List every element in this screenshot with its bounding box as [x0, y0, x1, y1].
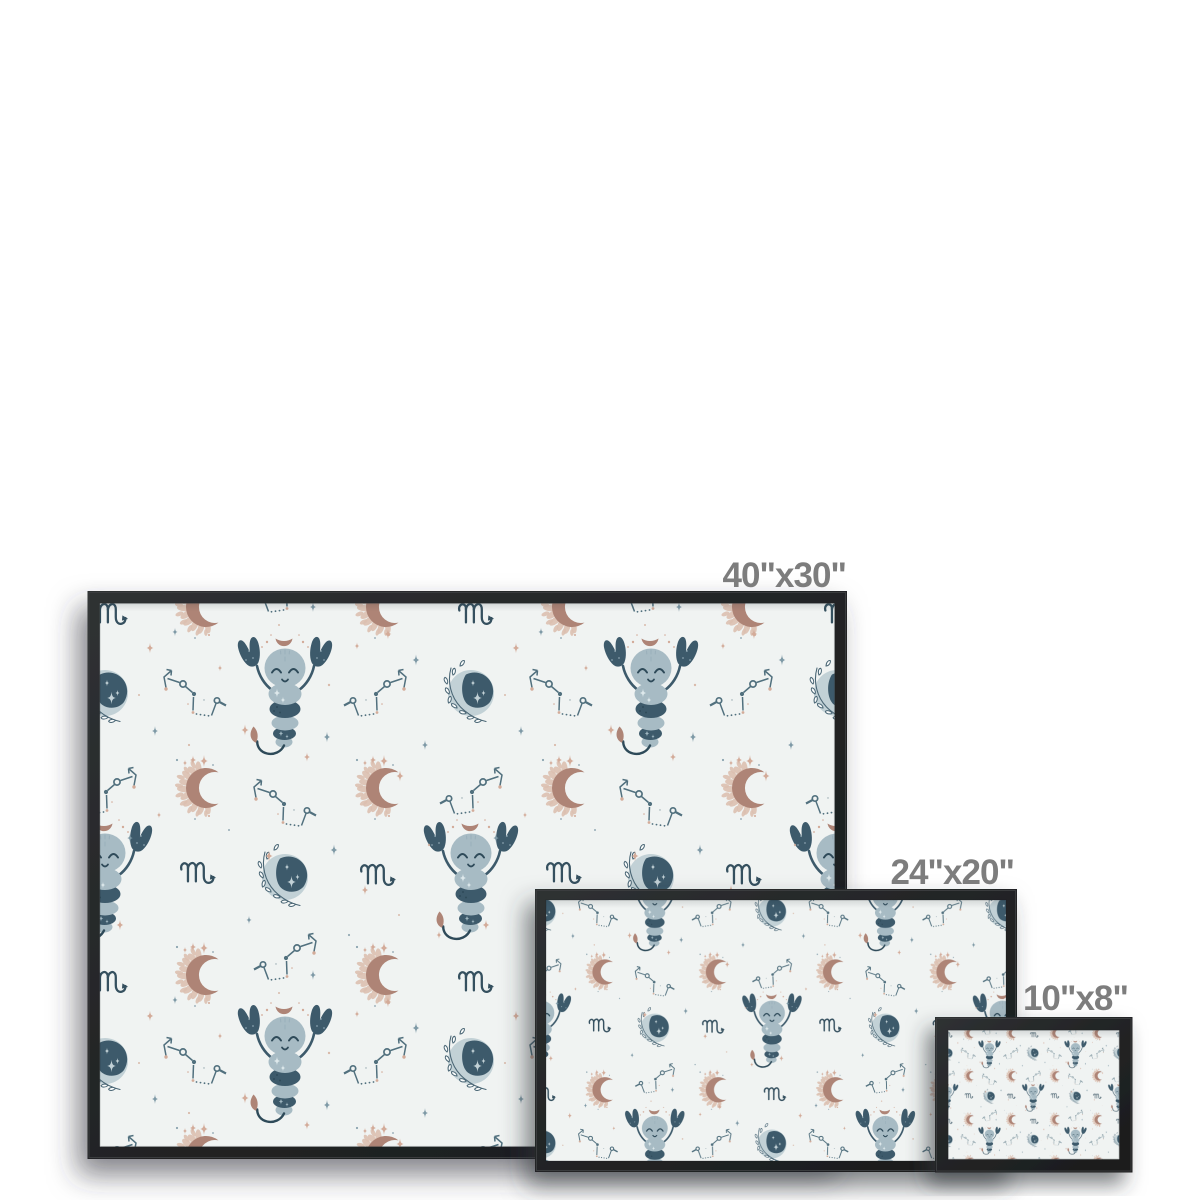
svg-text:40"x30": 40"x30" — [722, 556, 846, 595]
svg-text:24"x20": 24"x20" — [890, 853, 1014, 892]
svg-text:10"x8": 10"x8" — [1023, 979, 1128, 1018]
